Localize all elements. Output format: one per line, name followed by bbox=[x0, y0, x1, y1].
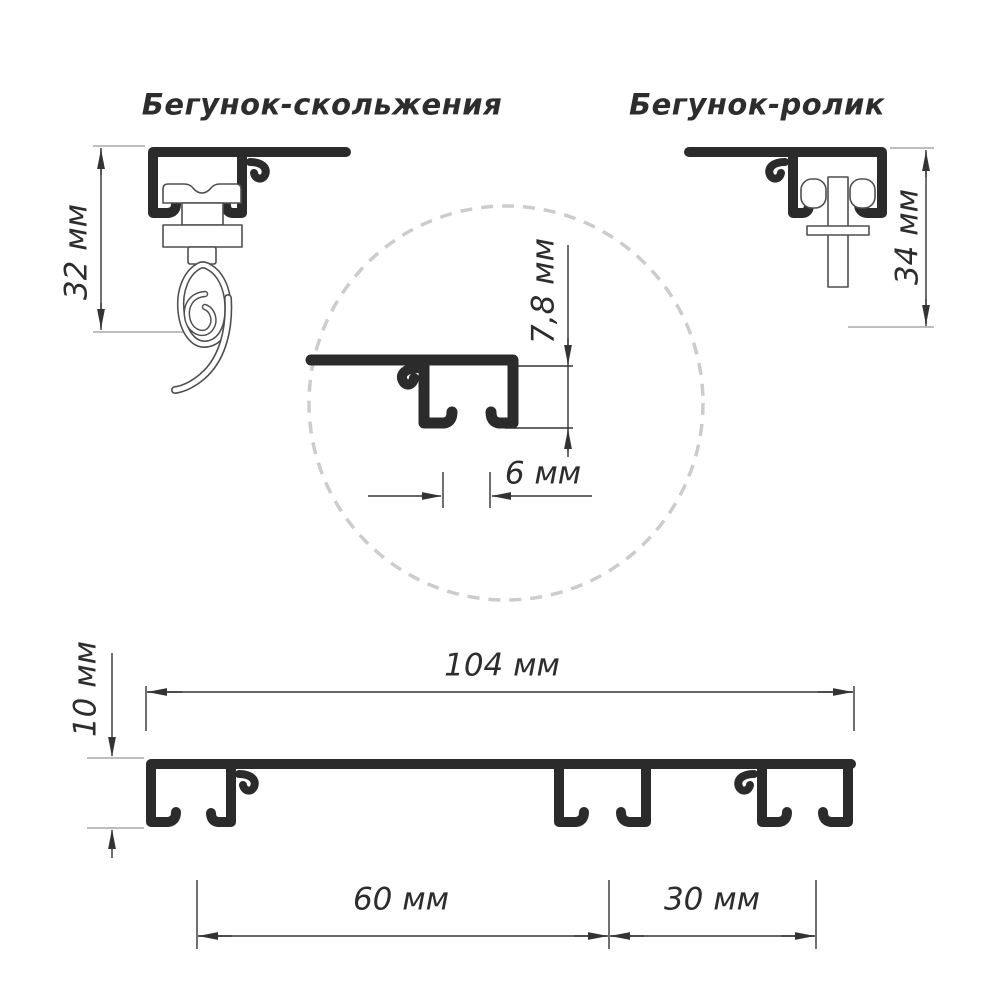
dim-label-left-channel-spacing: 60 мм bbox=[353, 885, 449, 916]
left-runner-slider bbox=[163, 184, 242, 264]
detail-magnifier-circle bbox=[309, 206, 703, 600]
dim-label-profile-total-width: 104 мм bbox=[444, 651, 560, 682]
left-runner-hook bbox=[175, 265, 228, 390]
dim-label-detail-height: 7,8 мм bbox=[529, 238, 560, 344]
detail-profile-drawing bbox=[311, 360, 513, 423]
technical-drawing bbox=[0, 0, 1000, 1000]
right-runner-roller bbox=[801, 177, 875, 287]
dim-label-profile-height: 10 мм bbox=[71, 641, 102, 737]
title-left-runner: Бегунок-скольжения bbox=[142, 91, 502, 120]
dim-label-right-channel-spacing: 30 мм bbox=[664, 885, 760, 916]
dim-label-runner-right-height: 34 мм bbox=[893, 189, 924, 285]
dim-label-detail-slot-width: 6 мм bbox=[505, 459, 581, 490]
dim-label-runner-left-height: 32 мм bbox=[62, 204, 93, 300]
curtain-rail-diagram: Бегунок-скольжения Бегунок-ролик 32 мм 3… bbox=[0, 0, 1000, 1000]
title-right-runner: Бегунок-ролик bbox=[629, 91, 885, 120]
bottom-profile-drawing bbox=[151, 764, 851, 822]
